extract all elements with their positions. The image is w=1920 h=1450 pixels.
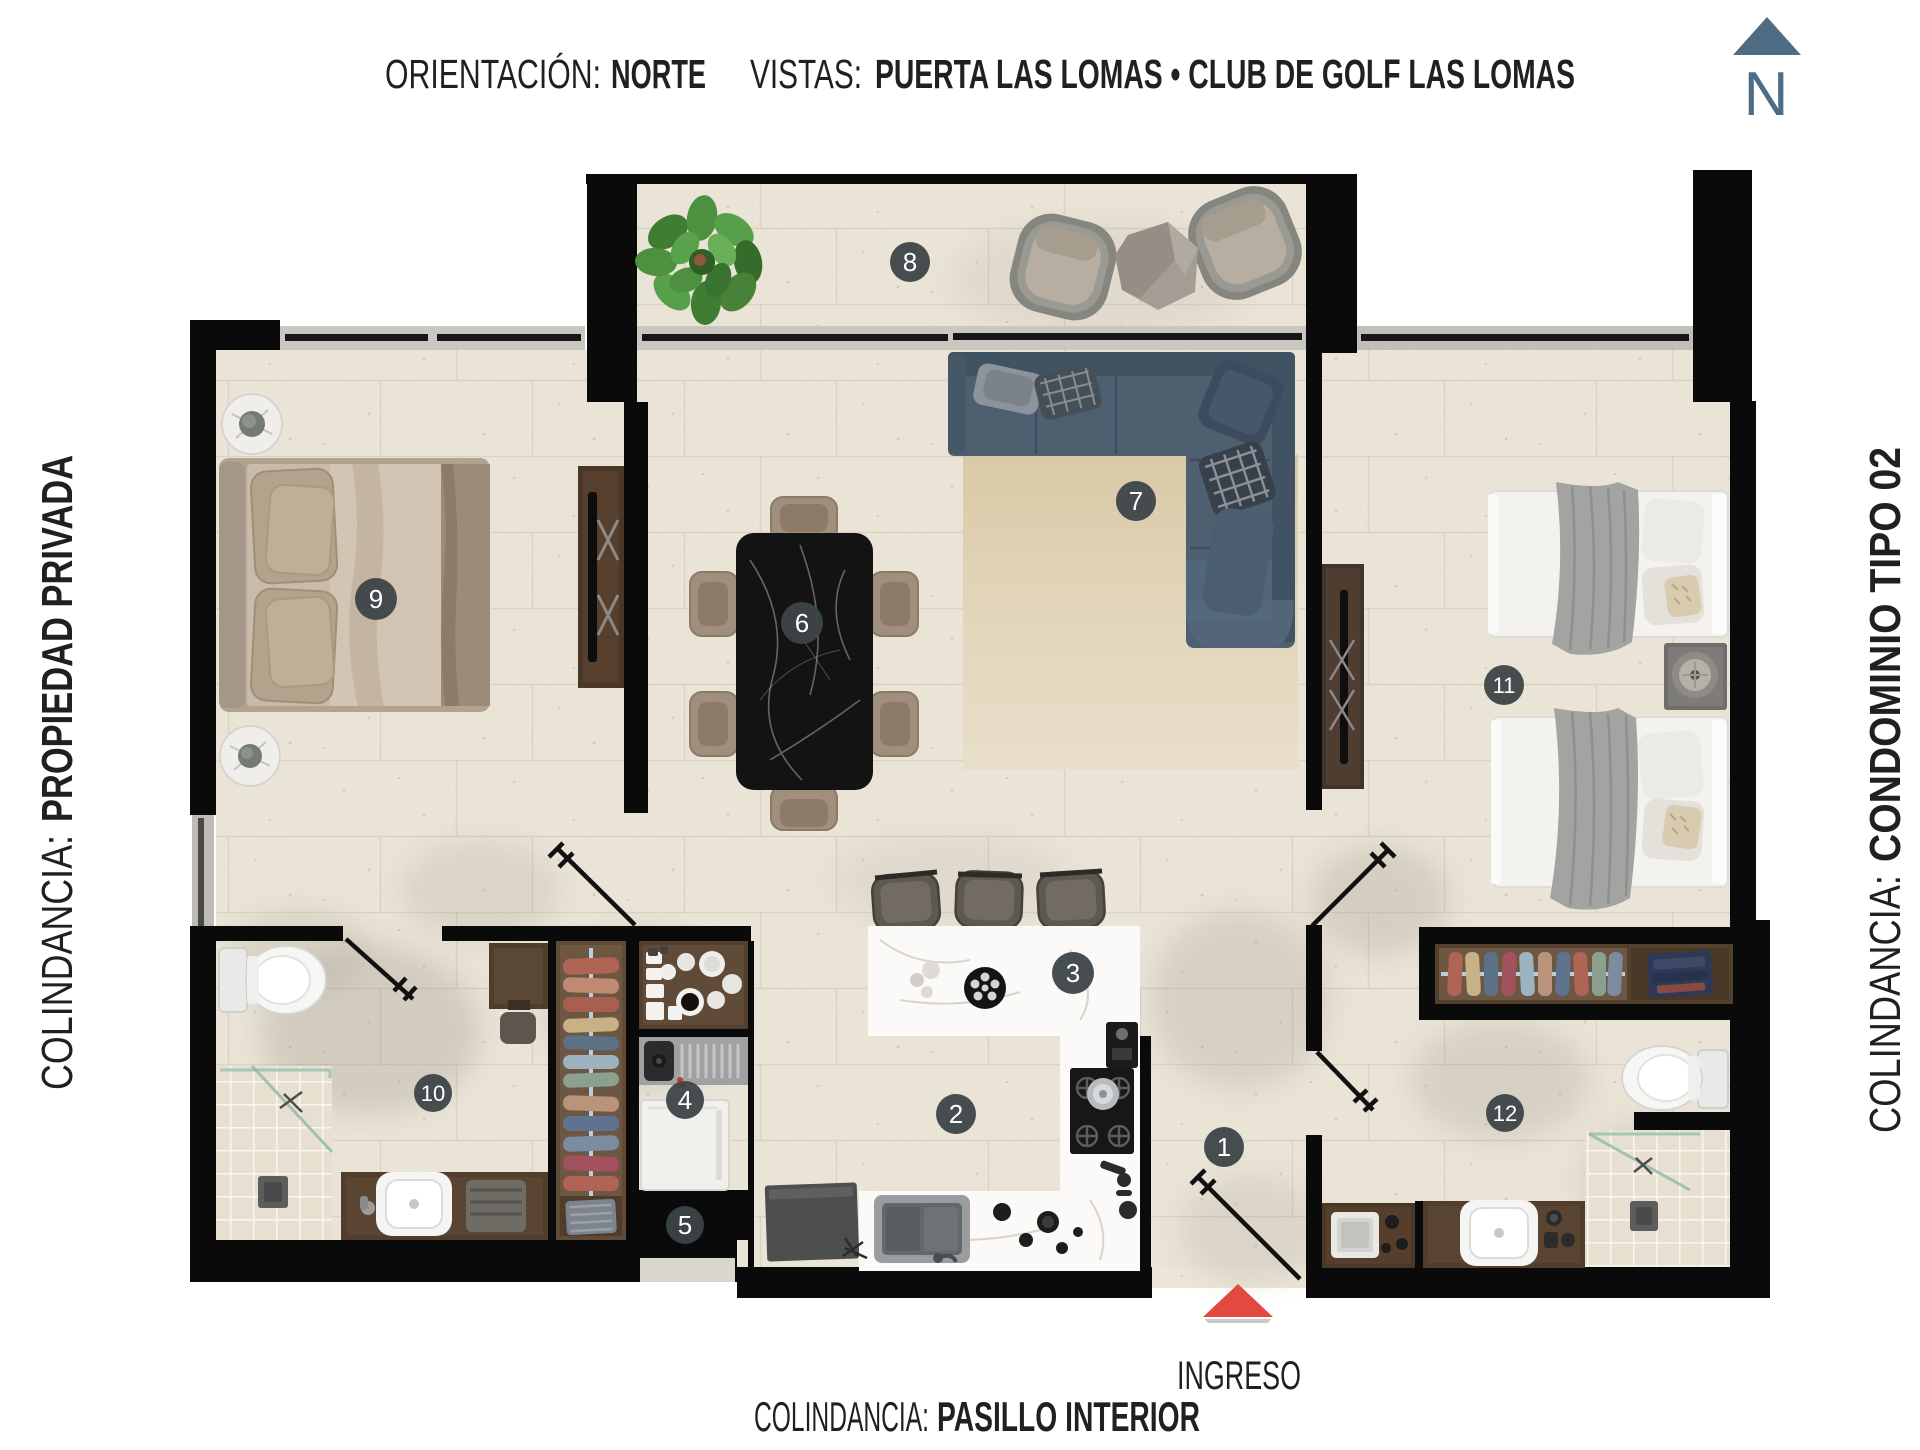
svg-text:7: 7 [1129, 486, 1143, 516]
svg-text:1: 1 [1217, 1132, 1231, 1162]
svg-text:N: N [1744, 60, 1789, 129]
svg-text:PUERTA LAS LOMAS • CLUB DE GOL: PUERTA LAS LOMAS • CLUB DE GOLF LAS LOMA… [875, 51, 1575, 97]
svg-text:PROPIEDAD PRIVADA: PROPIEDAD PRIVADA [33, 455, 82, 822]
svg-text:ORIENTACIÓN:: ORIENTACIÓN: [385, 51, 601, 97]
svg-text:2: 2 [949, 1099, 963, 1129]
svg-text:VISTAS:: VISTAS: [750, 51, 862, 97]
svg-text:COLINDANCIA:: COLINDANCIA: [1861, 875, 1910, 1133]
svg-text:NORTE: NORTE [611, 51, 706, 97]
svg-text:9: 9 [369, 584, 383, 614]
svg-text:4: 4 [678, 1085, 692, 1115]
svg-text:CONDOMINIO TIPO 02: CONDOMINIO TIPO 02 [1861, 447, 1910, 862]
svg-text:5: 5 [678, 1210, 692, 1240]
svg-text:PASILLO INTERIOR: PASILLO INTERIOR [937, 1393, 1200, 1440]
svg-text:8: 8 [903, 247, 917, 277]
svg-text:12: 12 [1493, 1101, 1517, 1126]
svg-text:10: 10 [421, 1081, 445, 1106]
svg-text:11: 11 [1493, 673, 1516, 698]
svg-text:COLINDANCIA:: COLINDANCIA: [754, 1393, 929, 1440]
svg-text:6: 6 [795, 608, 809, 638]
svg-text:COLINDANCIA:: COLINDANCIA: [33, 835, 82, 1090]
svg-text:INGRESO: INGRESO [1177, 1354, 1301, 1398]
svg-text:3: 3 [1066, 958, 1080, 988]
